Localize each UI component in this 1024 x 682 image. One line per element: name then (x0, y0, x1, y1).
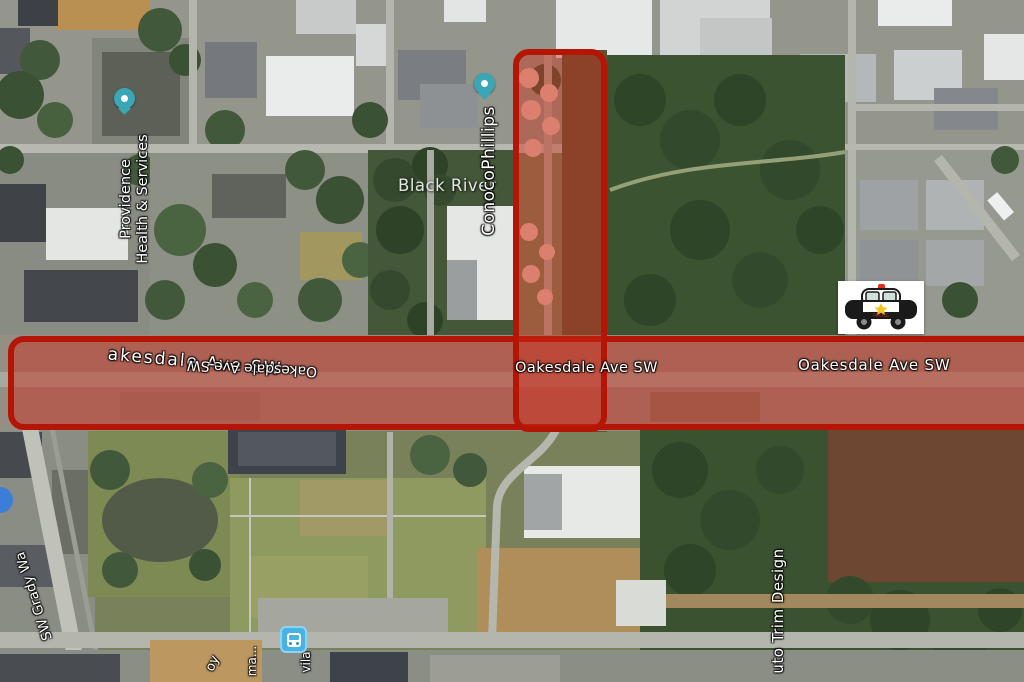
place-label-partial-2: ma... (245, 636, 259, 682)
place-label-auto-trim-design: uto Trim Design (769, 526, 787, 682)
place-label-providence-line2: Health & Services (135, 109, 152, 289)
bus-glyph-icon (287, 633, 301, 647)
place-label-providence-line1: Providence (118, 109, 135, 289)
bus-wheel-left (289, 642, 292, 645)
road-label-oakesdale-center: Oakesdale Ave SW (515, 360, 658, 376)
bus-wheel-right (296, 642, 299, 645)
place-label-providence: Providence Health & Services (118, 109, 152, 289)
map-viewport[interactable]: Providence Health & Services Black River… (0, 0, 1024, 682)
police-car-marker: POLICE (838, 281, 924, 334)
road-label-oakesdale-right: Oakesdale Ave SW (798, 356, 950, 374)
police-car-text: POLICE (873, 313, 889, 319)
place-label-conocophillips: ConocoPhillips (479, 86, 499, 256)
police-car-icon: POLICE (838, 281, 924, 334)
bus-window (289, 635, 299, 640)
transit-station-icon[interactable] (280, 626, 307, 653)
providence-poi-pin-icon[interactable] (114, 88, 135, 109)
conocophillips-poi-pin-icon[interactable] (474, 73, 495, 94)
